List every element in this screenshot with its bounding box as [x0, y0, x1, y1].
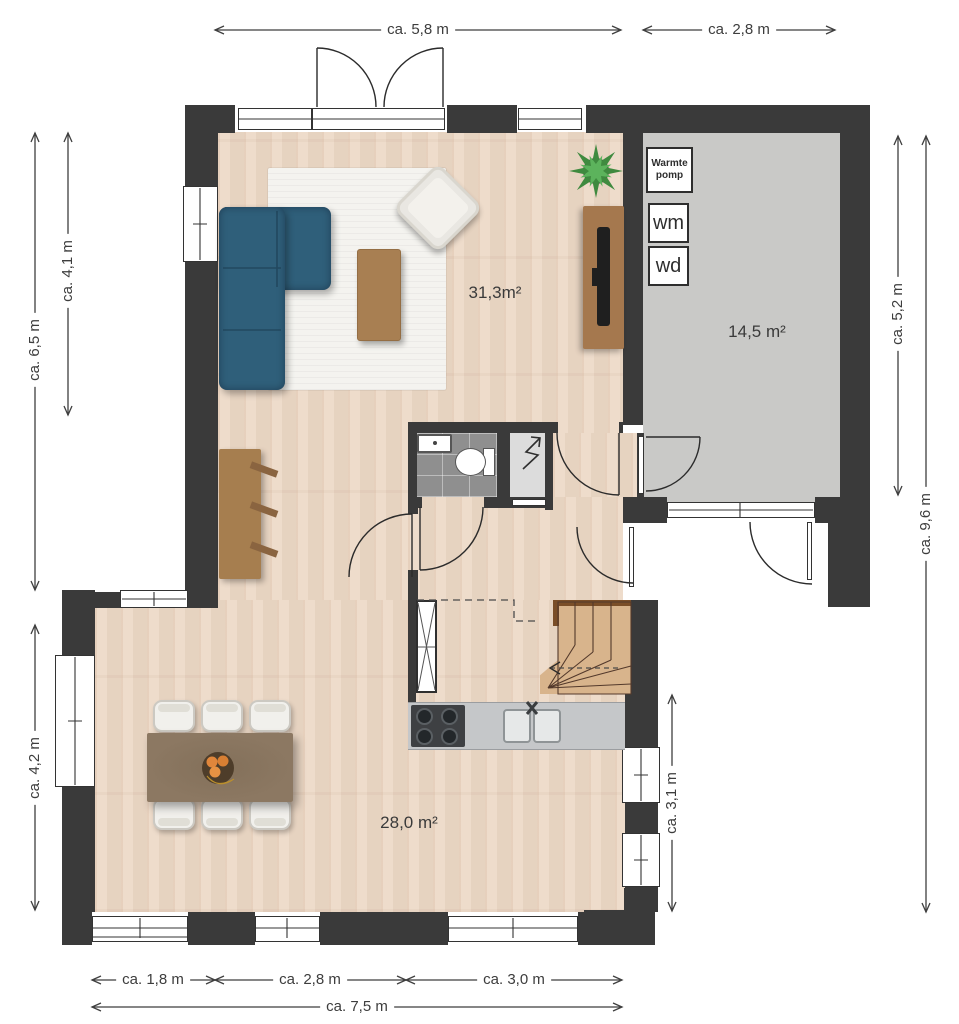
- washing-machine-label: wm: [653, 213, 684, 233]
- chair-back: [206, 818, 238, 826]
- burner: [416, 708, 433, 725]
- window-garage-south: [667, 502, 815, 518]
- dim-left-outer: ca. 6,5 m: [26, 313, 44, 387]
- dining-table: [147, 733, 293, 802]
- wall-right-kitchen-c: [625, 887, 658, 912]
- wall-garage-top: [623, 105, 869, 133]
- sofa-body: [219, 207, 285, 390]
- vestibule-floor: [408, 497, 623, 607]
- dryer-box: wd: [648, 246, 689, 286]
- dim-left-inner: ca. 4,1 m: [59, 234, 77, 308]
- wall-top-right: [586, 105, 623, 133]
- window-bottom-c: [448, 916, 578, 942]
- stair-edge-left: [553, 600, 559, 626]
- window-bottom-a: [92, 916, 188, 942]
- wall-bottom-b: [320, 912, 448, 945]
- burner: [441, 728, 458, 745]
- burner: [441, 708, 458, 725]
- wall-right-kitchen-b: [625, 803, 658, 833]
- window-right-a: [622, 747, 660, 803]
- wall-vestibule-b: [408, 570, 418, 600]
- wall-bottom-corner-left: [62, 912, 92, 945]
- living-room-area-label: 31,3m²: [469, 283, 522, 303]
- burner: [416, 728, 433, 745]
- sink-basin-left: [503, 709, 531, 743]
- wall-living-hall-b: [619, 422, 623, 433]
- heat-pump-box: Warmte pomp: [646, 147, 693, 193]
- coffee-table: [357, 249, 401, 341]
- staircase: [558, 602, 631, 694]
- meter-closet-door: [512, 499, 546, 506]
- dim-top-living: ca. 5,8 m: [381, 21, 455, 39]
- stove: [411, 705, 465, 747]
- kitchen-area-label: 28,0 m²: [380, 813, 438, 833]
- window-left-lower: [55, 655, 95, 787]
- garage-south-door-panel: [807, 522, 812, 580]
- dim-left-lower: ca. 4,2 m: [26, 731, 44, 805]
- window-step: [120, 590, 188, 608]
- wall-living-hall-a: [408, 422, 558, 433]
- dining-chair: [153, 798, 195, 830]
- wall-step-corner: [62, 590, 95, 655]
- wall-vestibule-a: [408, 508, 418, 514]
- wall-garage-right: [840, 105, 870, 523]
- tall-cabinet: [416, 600, 437, 693]
- dining-chair: [201, 798, 243, 830]
- dim-bottom-mid: ca. 2,8 m: [273, 971, 347, 989]
- wall-garage-left: [623, 122, 643, 425]
- sink-basin-right: [533, 709, 561, 743]
- wall-garage-bottom-chunk: [815, 497, 840, 523]
- washing-machine-box: wm: [648, 203, 689, 243]
- chair-back: [158, 818, 190, 826]
- dining-chair: [201, 700, 243, 732]
- dining-chair: [249, 798, 291, 830]
- dim-top-garage: ca. 2,8 m: [702, 21, 776, 39]
- window-left-upper: [183, 186, 218, 262]
- dining-chair: [153, 700, 195, 732]
- chair-back: [254, 818, 286, 826]
- window-bottom-b: [255, 916, 320, 942]
- wall-bottom-a: [188, 912, 255, 945]
- dim-bottom-right: ca. 3,0 m: [477, 971, 551, 989]
- chair-back: [158, 704, 190, 712]
- wall-toilet-bottom-a: [408, 497, 422, 508]
- hand-basin: [417, 434, 452, 453]
- wall-hall-chunk: [623, 497, 667, 523]
- window-right-b: [622, 833, 660, 887]
- dim-right-garage: ca. 5,2 m: [889, 277, 907, 351]
- wall-bottom-corner-right: [584, 910, 655, 945]
- front-door-panel: [638, 436, 644, 494]
- wall-toilet-divider: [497, 433, 510, 497]
- stair-edge-top: [553, 600, 631, 606]
- dryer-label: wd: [656, 256, 682, 276]
- garage-area-label: 14,5 m²: [728, 322, 786, 342]
- window-top-right: [518, 108, 582, 130]
- wall-top-mid: [447, 105, 517, 133]
- dining-chair: [249, 700, 291, 732]
- basin-faucet: [433, 441, 437, 445]
- wall-left-lower: [62, 787, 95, 912]
- dim-right-outer: ca. 9,6 m: [917, 487, 935, 561]
- wall-kitchen-stub: [408, 600, 416, 702]
- window-top-left: [238, 108, 312, 130]
- wall-step-stub: [95, 592, 122, 608]
- tv-screen: [597, 227, 610, 326]
- heat-pump-label: Warmte pomp: [650, 158, 689, 182]
- floor-plan: Warmte pomp wm wd: [0, 0, 959, 1024]
- french-door-threshold: [312, 108, 445, 130]
- dim-bottom-total: ca. 7,5 m: [320, 998, 394, 1016]
- chair-back: [254, 704, 286, 712]
- dim-bottom-left: ca. 1,8 m: [116, 971, 190, 989]
- toilet-bowl: [455, 448, 486, 476]
- chair-back: [206, 704, 238, 712]
- dim-right-kitchen: ca. 3,1 m: [663, 766, 681, 840]
- hall-east-door-panel: [629, 527, 634, 587]
- wall-left-upper-b: [185, 262, 218, 608]
- wall-left-upper-a: [185, 105, 218, 186]
